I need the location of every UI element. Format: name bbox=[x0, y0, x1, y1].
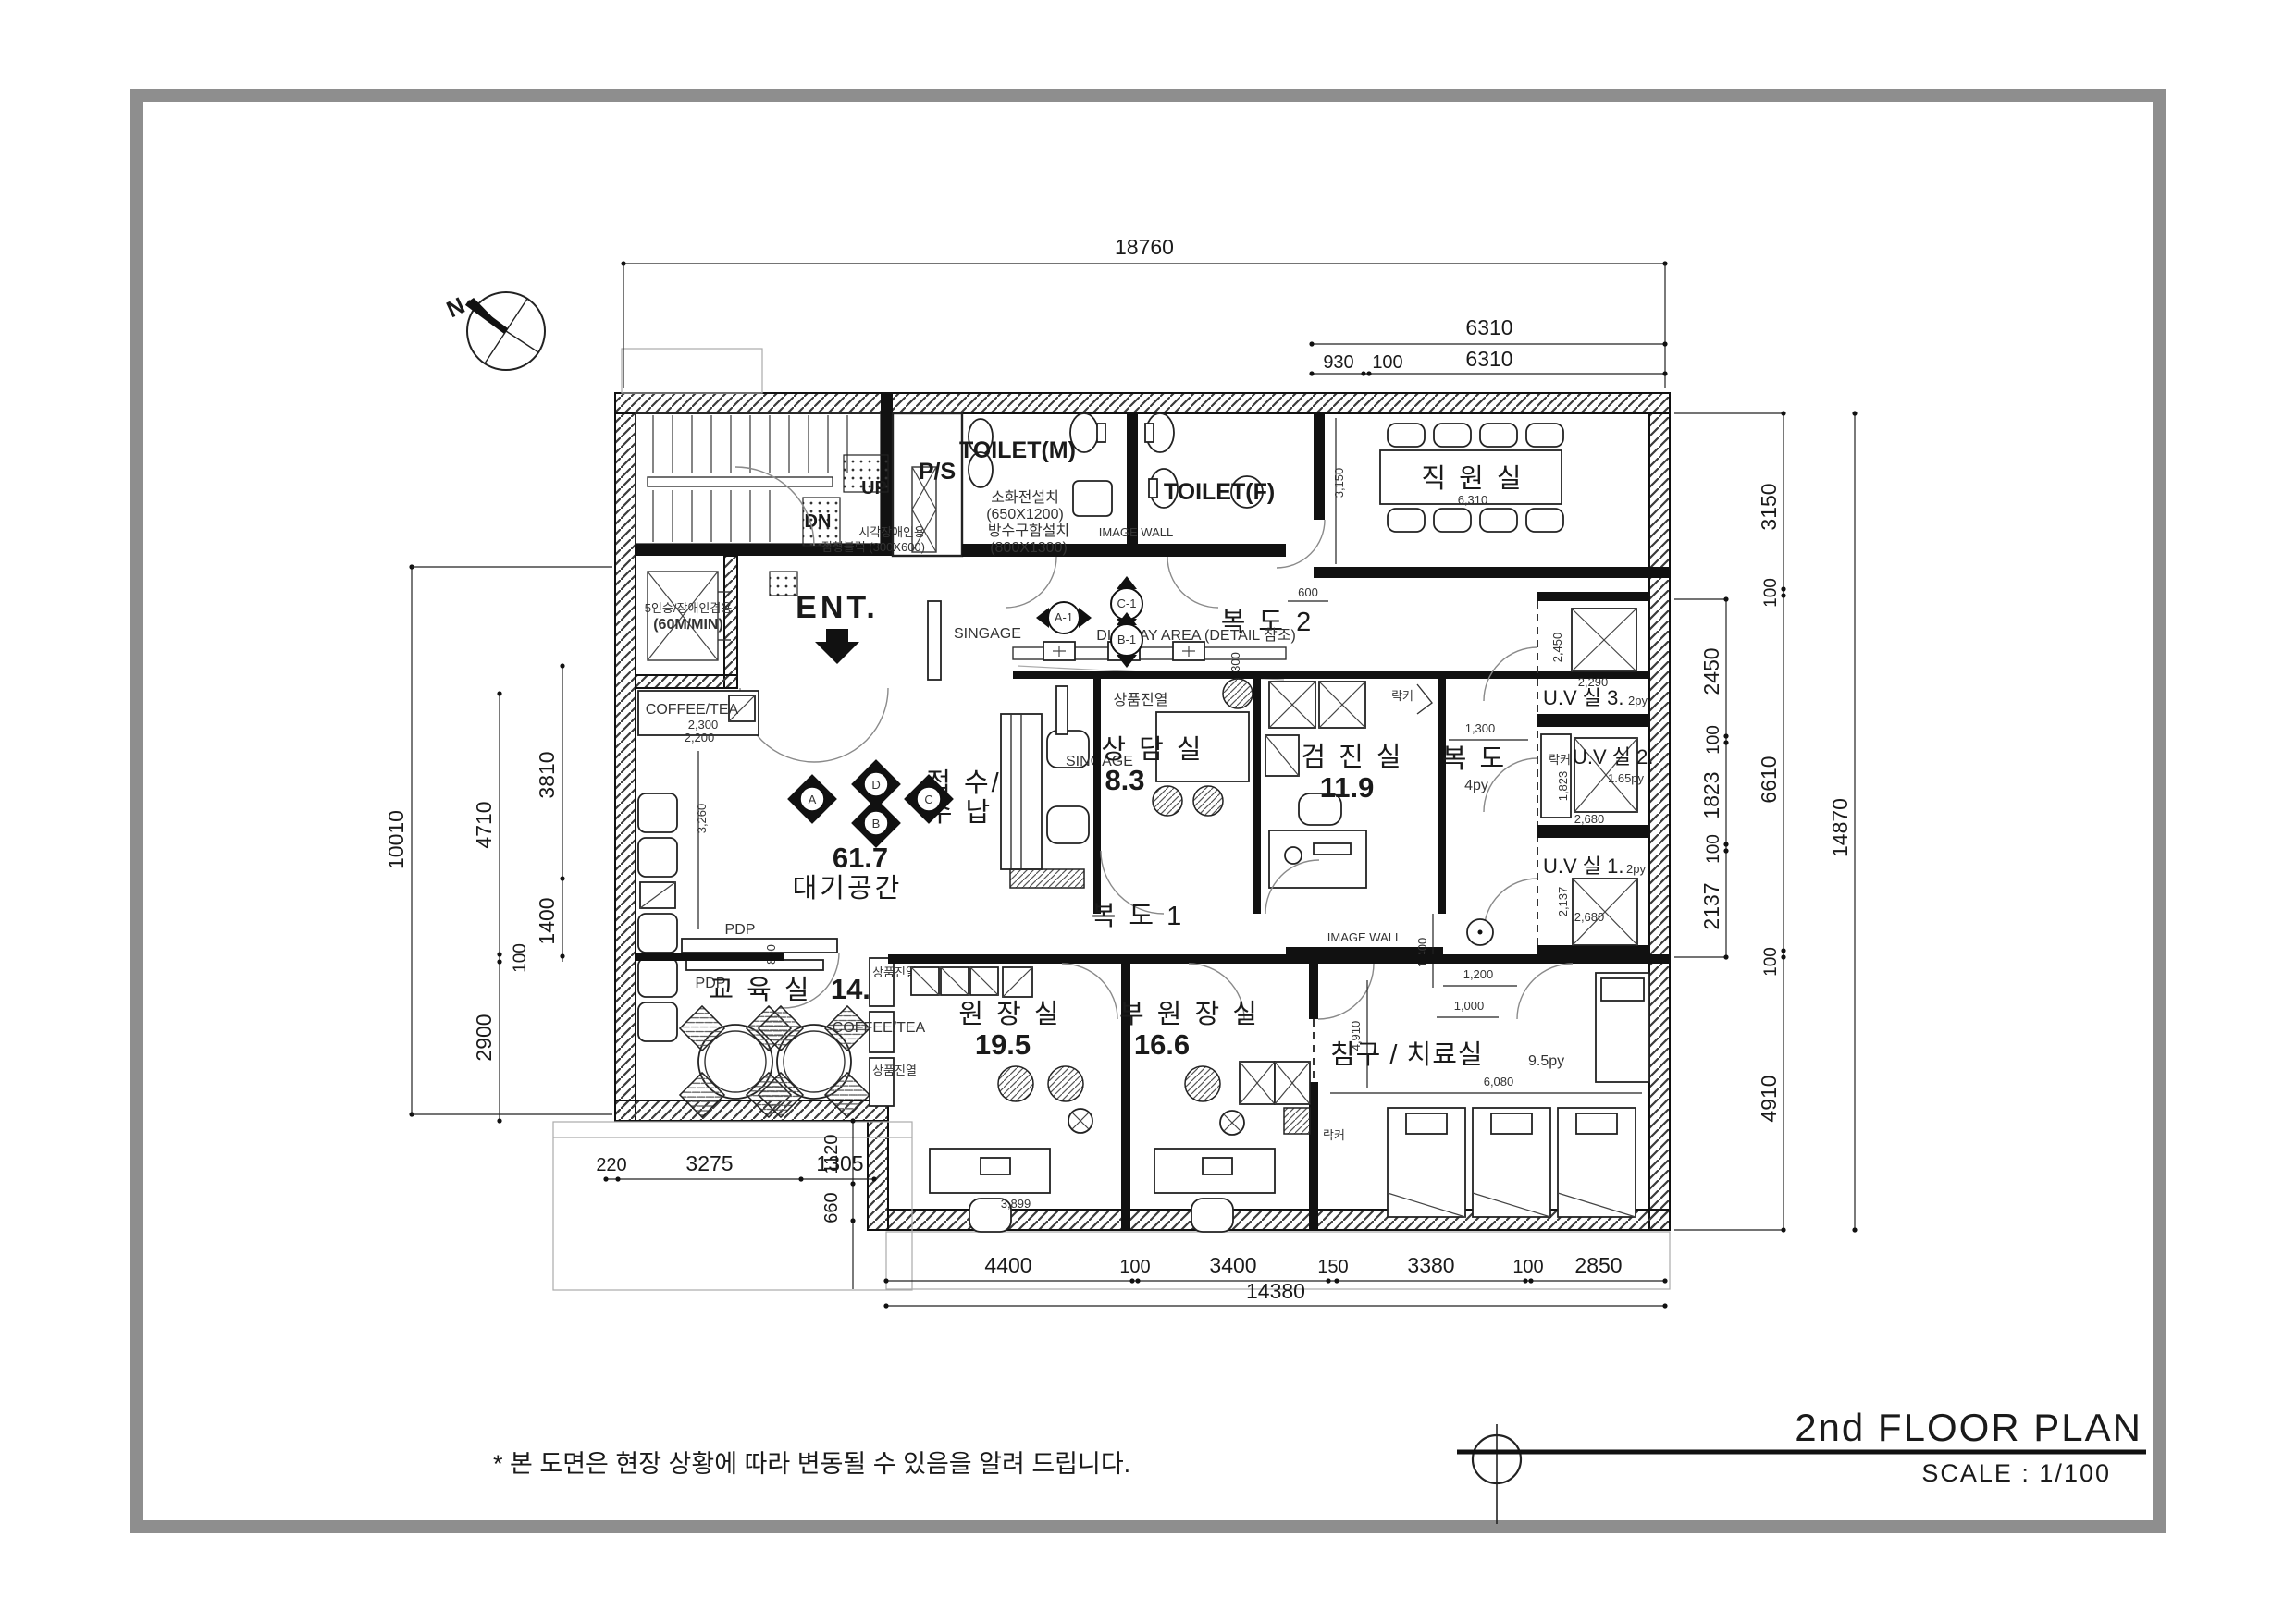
dim-right-3150: 3150 bbox=[1757, 483, 1781, 530]
consult-label: 상 담 실 bbox=[1101, 735, 1204, 765]
chair-icon bbox=[1193, 786, 1223, 816]
revision-footnote: * 본 도면은 현장 상황에 따라 변동될 수 있음을 알려 드립니다. bbox=[493, 1450, 1130, 1478]
dim-right-4910: 4910 bbox=[1757, 1075, 1781, 1122]
braille-block-pad bbox=[770, 572, 797, 596]
uv1-label: U.V 실 1. bbox=[1543, 855, 1624, 878]
dim-right-100a: 100 bbox=[1761, 578, 1781, 608]
fire-hydrant-size: (650X1200) bbox=[986, 507, 1064, 523]
signage-stand bbox=[1056, 686, 1068, 734]
entrance: ENT. SINGAGE 시각장애인용 점형블럭 (300X600) bbox=[740, 525, 1021, 762]
dim-top-6310a: 6310 bbox=[1465, 315, 1512, 339]
dim-bottom-total: 14380 bbox=[1246, 1279, 1305, 1303]
shelf-label-1: 상품진열 bbox=[1114, 692, 1168, 708]
corridor1-dim-1200: 1,200 bbox=[1463, 967, 1494, 981]
waiting-sofas bbox=[638, 793, 677, 1041]
uv3-area: 2py bbox=[1628, 694, 1648, 707]
education-room: 교 육 실 14.3 상품진열 COFFEE/TEA 상품진열 bbox=[636, 953, 926, 1117]
coffee-tea-education-label: COFFEE/TEA bbox=[833, 1020, 926, 1036]
corridor1-label: 복 도 1 bbox=[1092, 902, 1185, 931]
elevator-type-label: 5인승/장애인겸용 bbox=[645, 601, 733, 615]
entrance-arrow-icon bbox=[815, 642, 859, 664]
light-symbol bbox=[1220, 1111, 1244, 1135]
dim-left-100: 100 bbox=[511, 943, 530, 973]
dim-right-2137: 2137 bbox=[1699, 882, 1723, 929]
fire-hydrant-note: 소화전설치 bbox=[991, 489, 1059, 506]
uv2-height-dim: 1,823 bbox=[1556, 771, 1570, 802]
dim-right-1823: 1823 bbox=[1699, 771, 1723, 818]
uv2-width-dim: 2,680 bbox=[1574, 812, 1605, 826]
dim-right-100d: 100 bbox=[1761, 947, 1781, 977]
stair-dn-label: DN bbox=[805, 511, 832, 532]
sofa-run-dim: 3,260 bbox=[695, 804, 709, 834]
dim-bottom-100a: 100 bbox=[1119, 1257, 1150, 1277]
director-area: 19.5 bbox=[975, 1028, 1031, 1061]
dim-right-100c: 100 bbox=[1704, 834, 1723, 864]
shelf-label-3: 상품진열 bbox=[872, 1064, 917, 1077]
dim-right-6610: 6610 bbox=[1757, 756, 1781, 803]
elevator-speed-label: (60M/MIN) bbox=[653, 617, 723, 633]
ps-label: P/S bbox=[919, 459, 956, 485]
uv1-width-dim: 2,680 bbox=[1574, 910, 1605, 924]
north-arrow-icon: N bbox=[443, 292, 545, 370]
dim-right-2450: 2450 bbox=[1699, 647, 1723, 695]
uv-rooms: 2,450 2,290 U.V 실 3. 2py 락커 U.V 실 2. 1.6… bbox=[1484, 592, 1654, 954]
dim-left-3810: 3810 bbox=[535, 751, 559, 798]
vice-director-area: 16.6 bbox=[1134, 1028, 1190, 1061]
entrance-label: ENT. bbox=[796, 590, 879, 625]
drawing-title: 2nd FLOOR PLAN bbox=[1795, 1406, 2142, 1449]
floor-plan-canvas: N UP bbox=[0, 0, 2296, 1623]
display-depth-dim: 300 bbox=[1228, 652, 1242, 672]
marker-b1: B-1 bbox=[1117, 633, 1136, 646]
director-label: 원 장 실 bbox=[958, 1000, 1061, 1029]
consult-area: 8.3 bbox=[1105, 764, 1144, 796]
locker-exam-label: 락커 bbox=[1391, 689, 1413, 703]
dim-bl-1120: 1120 bbox=[821, 1134, 842, 1174]
toilet-block: TOILET(M) TOILET(F) 소화전설치 (650X1200) 방수구… bbox=[959, 413, 1286, 608]
marker-d: D bbox=[871, 778, 880, 792]
dim-left-2900: 2900 bbox=[472, 1014, 496, 1061]
image-wall-toilet-label: IMAGE WALL bbox=[1099, 525, 1173, 539]
waiting-area-value: 61.7 bbox=[833, 842, 888, 874]
corridor1-dim-1000: 1,000 bbox=[1454, 999, 1485, 1013]
mid-corridor-width-dim: 1,300 bbox=[1465, 721, 1496, 735]
vice-director-label: 부 원 장 실 bbox=[1119, 1000, 1260, 1029]
dim-left-1400: 1400 bbox=[535, 897, 559, 944]
dim-bottom-4400: 4400 bbox=[984, 1253, 1031, 1277]
coffee-dim-1: 2,300 bbox=[688, 718, 719, 732]
stair-up-label: UP bbox=[861, 478, 887, 498]
treatment-width-dim: 6,080 bbox=[1484, 1075, 1514, 1088]
north-label: N bbox=[443, 292, 469, 323]
sheet-border-frame bbox=[137, 95, 2159, 1527]
staff-room: 직 원 실 6,310 3,150 600 bbox=[1277, 413, 1670, 601]
dim-top-930: 930 bbox=[1323, 352, 1353, 373]
guest-chair-icon bbox=[1048, 1066, 1083, 1101]
mid-corridor: 복 도 4py 1,300 bbox=[1442, 721, 1528, 793]
coffee-tea-label: COFFEE/TEA bbox=[646, 702, 739, 718]
dim-bottom-3400: 3400 bbox=[1209, 1253, 1256, 1277]
exam-room: 락커 검 진 실 11.9 bbox=[1265, 671, 1446, 914]
waterproof-box-note: 방수구함설치 bbox=[988, 523, 1069, 539]
toilet-m-label: TOILET(M) bbox=[959, 437, 1076, 463]
toilet-f-label: TOILET(F) bbox=[1164, 479, 1275, 505]
dim-bottom-150: 150 bbox=[1317, 1257, 1348, 1277]
coffee-dim-2: 2,200 bbox=[685, 731, 715, 744]
guest-chair-icon bbox=[1185, 1066, 1220, 1101]
vice-director-room: 부 원 장 실 16.6 락커 bbox=[1119, 964, 1345, 1232]
locker-uv2-label: 락커 bbox=[1549, 753, 1571, 767]
pdp-label-1: PDP bbox=[725, 922, 756, 938]
dim-bottom-2850: 2850 bbox=[1574, 1253, 1622, 1277]
pdp-panel bbox=[686, 960, 823, 970]
office-chair-icon bbox=[1047, 806, 1089, 843]
dim-right-14870: 14870 bbox=[1828, 798, 1852, 857]
staircase: UP DN bbox=[636, 393, 893, 556]
dim-top-100: 100 bbox=[1372, 352, 1402, 373]
dim-top-6310b: 6310 bbox=[1465, 347, 1512, 371]
exam-desk bbox=[1269, 830, 1366, 888]
uv2-area: 1.65py bbox=[1608, 771, 1645, 785]
staff-room-height-dim: 3,150 bbox=[1332, 468, 1346, 498]
treatment-area: 9.5py bbox=[1528, 1053, 1564, 1069]
uv1-area: 2py bbox=[1626, 862, 1646, 876]
chair-icon bbox=[1223, 679, 1253, 708]
drawing-sheet: N UP bbox=[0, 0, 2296, 1623]
dim-top-total: 18760 bbox=[1115, 235, 1174, 259]
dim-bottom-3380: 3380 bbox=[1407, 1253, 1454, 1277]
marker-a: A bbox=[809, 793, 817, 806]
uv3-label: U.V 실 3. bbox=[1543, 686, 1624, 709]
uv1-height-dim: 2,137 bbox=[1556, 887, 1570, 917]
marker-c: C bbox=[924, 793, 932, 806]
shelf-label-2: 상품진열 bbox=[872, 965, 917, 979]
marker-c1: C-1 bbox=[1117, 596, 1137, 610]
door-offset-dim: 600 bbox=[1298, 585, 1318, 599]
guest-chair-icon bbox=[998, 1066, 1033, 1101]
pdp-panel bbox=[682, 939, 837, 953]
dim-bl-3275: 3275 bbox=[685, 1151, 733, 1175]
marker-a1: A-1 bbox=[1055, 610, 1073, 624]
uv3-height-dim: 2,450 bbox=[1550, 633, 1564, 663]
drawing-scale: SCALE : 1/100 bbox=[1921, 1459, 2111, 1487]
braille-note-line2: 점형블럭 (300X600) bbox=[821, 540, 925, 554]
reception: SINGAGE 접 수/ 수 납 bbox=[926, 686, 1133, 888]
elevator: 5인승/장애인겸용 (60M/MIN) bbox=[636, 556, 737, 688]
marker-b: B bbox=[872, 817, 881, 830]
washbasin-icon bbox=[1073, 481, 1112, 516]
waterproof-box-size: (800X1300) bbox=[990, 540, 1068, 556]
dim-bl-220: 220 bbox=[596, 1155, 626, 1175]
dim-right-100b: 100 bbox=[1704, 725, 1723, 755]
director-desk-dim: 3,899 bbox=[1001, 1197, 1031, 1211]
exam-area: 11.9 bbox=[1320, 771, 1375, 804]
treatment-height-dim: 4,910 bbox=[1349, 1021, 1363, 1051]
office-chair-icon bbox=[1191, 1199, 1233, 1232]
mid-corridor-area: 4py bbox=[1464, 778, 1488, 793]
light-symbol bbox=[1068, 1109, 1092, 1133]
dim-left-4710: 4710 bbox=[472, 801, 496, 848]
dim-bottom-100b: 100 bbox=[1512, 1257, 1543, 1277]
uv2-label: U.V 실 2. bbox=[1573, 745, 1654, 768]
title-block: 2nd FLOOR PLAN SCALE : 1/100 bbox=[1457, 1406, 2146, 1524]
image-wall-corridor-label: IMAGE WALL bbox=[1327, 930, 1401, 944]
signage-label: SINGAGE bbox=[954, 626, 1021, 642]
exam-label: 검 진 실 bbox=[1301, 743, 1403, 772]
dim-left-10010: 10010 bbox=[384, 810, 408, 869]
dim-bl-660: 660 bbox=[821, 1192, 842, 1223]
waiting-area-label: 대기공간 bbox=[793, 873, 903, 904]
signage-stand bbox=[928, 601, 941, 680]
staff-room-label: 직 원 실 bbox=[1421, 464, 1524, 494]
chair-icon bbox=[1153, 786, 1182, 816]
staff-room-width-dim: 6,310 bbox=[1458, 493, 1488, 507]
stair-door-swing bbox=[735, 467, 814, 546]
education-label: 교 육 실 bbox=[709, 976, 811, 1005]
mid-corridor-label: 복 도 bbox=[1442, 744, 1507, 774]
locker-vice-label: 락커 bbox=[1323, 1128, 1345, 1142]
